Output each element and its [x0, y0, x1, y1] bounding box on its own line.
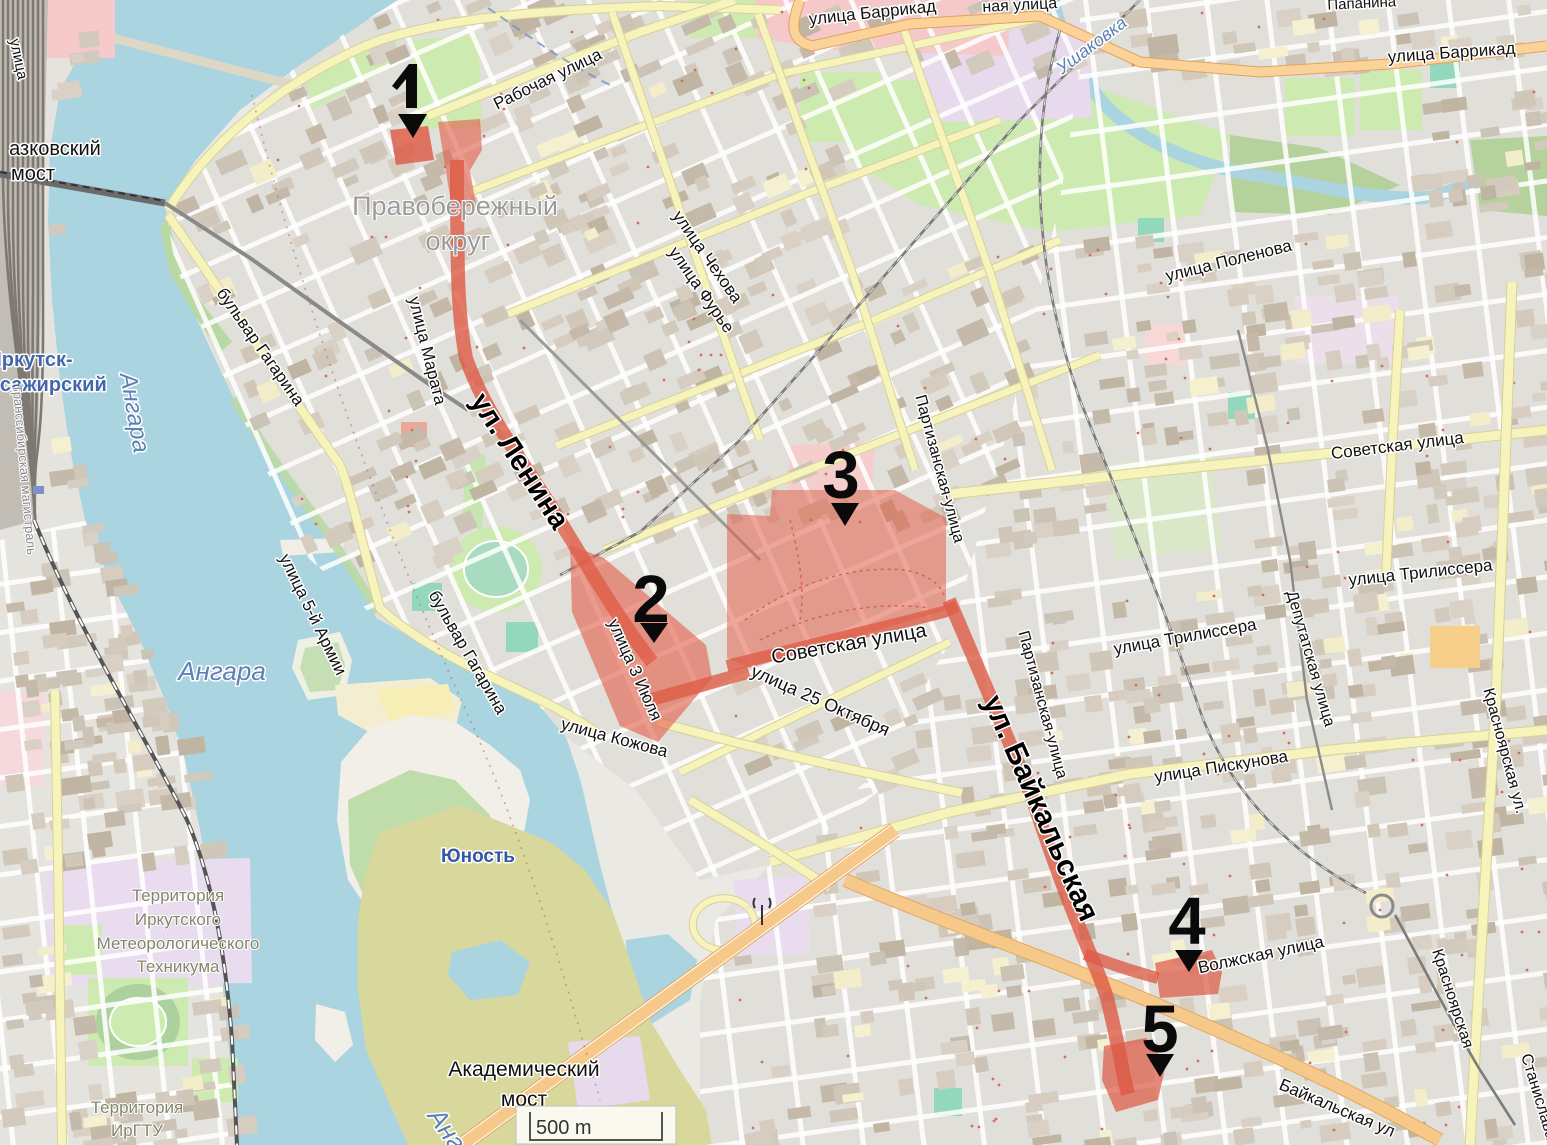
svg-text:Метеорологического: Метеорологического: [97, 934, 260, 953]
svg-text:500 m: 500 m: [536, 1117, 592, 1139]
svg-text:Техникума: Техникума: [137, 957, 221, 976]
svg-text:Юность: Юность: [441, 846, 515, 867]
svg-text:Территория: Территория: [132, 886, 225, 905]
svg-text:Территория: Территория: [91, 1098, 184, 1117]
svg-text:Правобережный: Правобережный: [352, 191, 558, 221]
svg-text:Иркутск-: Иркутск-: [0, 349, 73, 371]
svg-text:азковский: азковский: [9, 138, 101, 160]
svg-text:3: 3: [822, 438, 859, 513]
svg-text:Ангара: Ангара: [176, 656, 266, 686]
svg-text:4: 4: [1168, 884, 1205, 959]
svg-text:ИрГТУ: ИрГТУ: [111, 1121, 163, 1140]
svg-text:Академический: Академический: [448, 1058, 599, 1081]
svg-text:Иркутского: Иркутского: [135, 910, 221, 929]
svg-text:округ: округ: [426, 226, 491, 256]
svg-text:мост: мост: [11, 163, 55, 185]
